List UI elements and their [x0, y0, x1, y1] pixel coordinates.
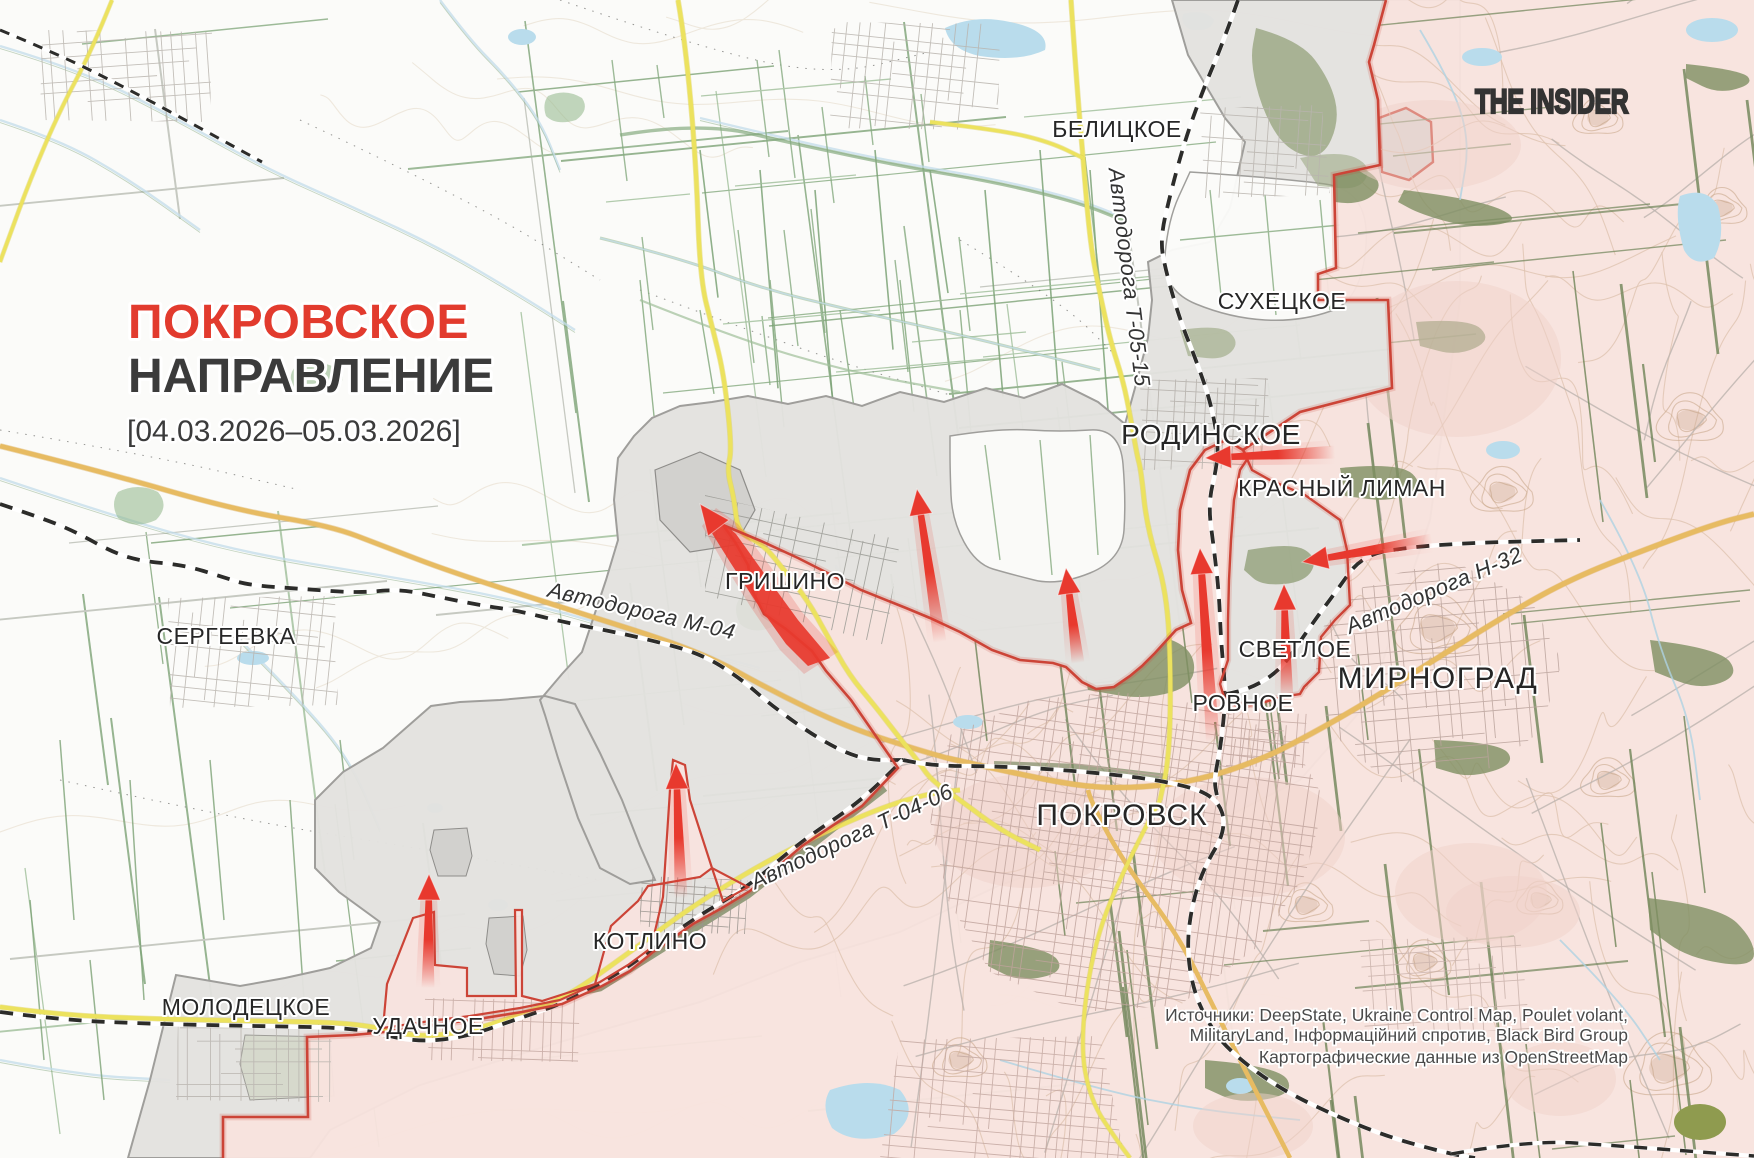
- svg-text:МОЛОДЕЦКОЕ: МОЛОДЕЦКОЕ: [162, 994, 331, 1020]
- svg-text:КОТЛИНО: КОТЛИНО: [593, 928, 707, 954]
- svg-text:ПОКРОВСК: ПОКРОВСК: [1036, 799, 1207, 832]
- svg-text:[04.03.2026–05.03.2026]: [04.03.2026–05.03.2026]: [127, 415, 461, 448]
- svg-text:КРАСНЫЙ ЛИМАН: КРАСНЫЙ ЛИМАН: [1238, 474, 1446, 501]
- svg-text:ГРИШИНО: ГРИШИНО: [725, 568, 845, 594]
- svg-text:МИРНОГРАД: МИРНОГРАД: [1338, 662, 1539, 695]
- svg-text:СУХЕЦКОЕ: СУХЕЦКОЕ: [1218, 288, 1347, 314]
- svg-text:РОДИНСКОЕ: РОДИНСКОЕ: [1121, 419, 1301, 450]
- svg-text:НАПРАВЛЕНИЕ: НАПРАВЛЕНИЕ: [128, 350, 494, 403]
- svg-text:THE INSIDER: THE INSIDER: [1475, 83, 1629, 121]
- svg-text:ПОКРОВСКОЕ: ПОКРОВСКОЕ: [128, 296, 469, 349]
- svg-text:MilitaryLand, Інформаційний сп: MilitaryLand, Інформаційний спротив, Bla…: [1190, 1025, 1628, 1045]
- svg-text:БЕЛИЦКОЕ: БЕЛИЦКОЕ: [1052, 116, 1181, 142]
- svg-text:СЕРГЕЕВКА: СЕРГЕЕВКА: [156, 623, 295, 649]
- svg-text:РОВНОЕ: РОВНОЕ: [1193, 690, 1294, 716]
- svg-text:СВЕТЛОЕ: СВЕТЛОЕ: [1239, 636, 1352, 662]
- svg-text:УДАЧНОЕ: УДАЧНОЕ: [372, 1013, 483, 1039]
- svg-text:Картографические данные из Ope: Картографические данные из OpenStreetMap: [1259, 1047, 1628, 1067]
- svg-text:Источники: DeepState, Ukraine: Источники: DeepState, Ukraine Control Ma…: [1165, 1005, 1628, 1025]
